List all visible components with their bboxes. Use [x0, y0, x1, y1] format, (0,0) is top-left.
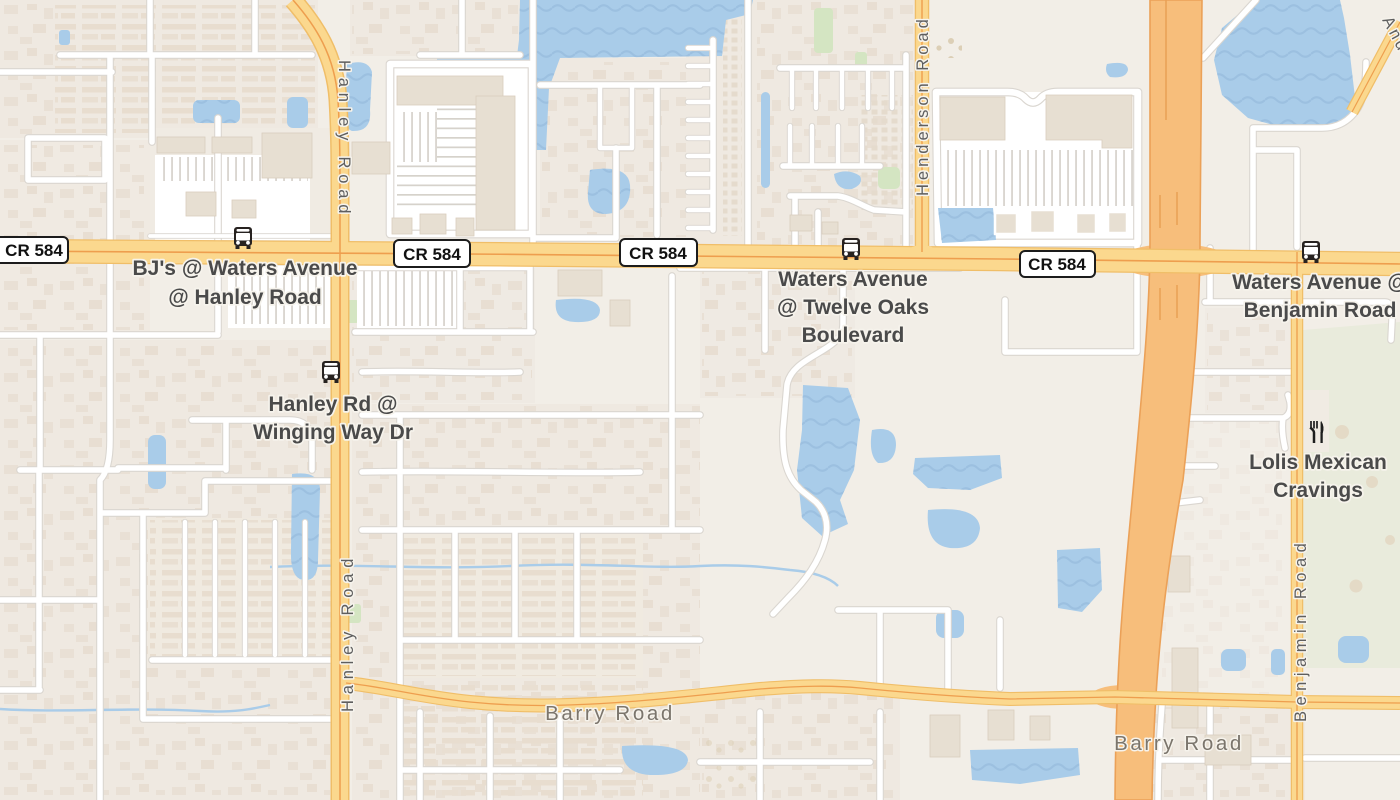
- svg-text:Hanley Road: Hanley Road: [335, 60, 353, 219]
- svg-text:@ Hanley Road: @ Hanley Road: [168, 286, 322, 309]
- svg-text:CR 584: CR 584: [5, 241, 63, 260]
- svg-text:Boulevard: Boulevard: [802, 324, 905, 347]
- svg-text:Barry Road: Barry Road: [545, 702, 675, 725]
- svg-text:CR 584: CR 584: [629, 244, 687, 263]
- svg-text:CR 584: CR 584: [1028, 255, 1086, 274]
- svg-text:Benjamin Road: Benjamin Road: [1292, 538, 1310, 722]
- svg-text:BJ's @ Waters Avenue: BJ's @ Waters Avenue: [132, 257, 357, 280]
- svg-text:Hanley Road: Hanley Road: [339, 553, 357, 712]
- svg-text:Barry Road: Barry Road: [1114, 732, 1244, 755]
- svg-text:Waters Avenue: Waters Avenue: [778, 268, 927, 291]
- svg-text:Benjamin Road: Benjamin Road: [1244, 299, 1397, 322]
- svg-text:Waters Avenue @: Waters Avenue @: [1232, 271, 1400, 294]
- svg-text:Lolis Mexican: Lolis Mexican: [1249, 451, 1387, 474]
- svg-text:Cravings: Cravings: [1273, 479, 1363, 502]
- svg-text:CR 584: CR 584: [403, 245, 461, 264]
- svg-text:Winging Way Dr: Winging Way Dr: [253, 421, 413, 444]
- svg-text:@ Twelve Oaks: @ Twelve Oaks: [777, 296, 929, 319]
- svg-text:Hanley Rd @: Hanley Rd @: [268, 393, 397, 416]
- svg-text:Henderson Road: Henderson Road: [914, 15, 932, 196]
